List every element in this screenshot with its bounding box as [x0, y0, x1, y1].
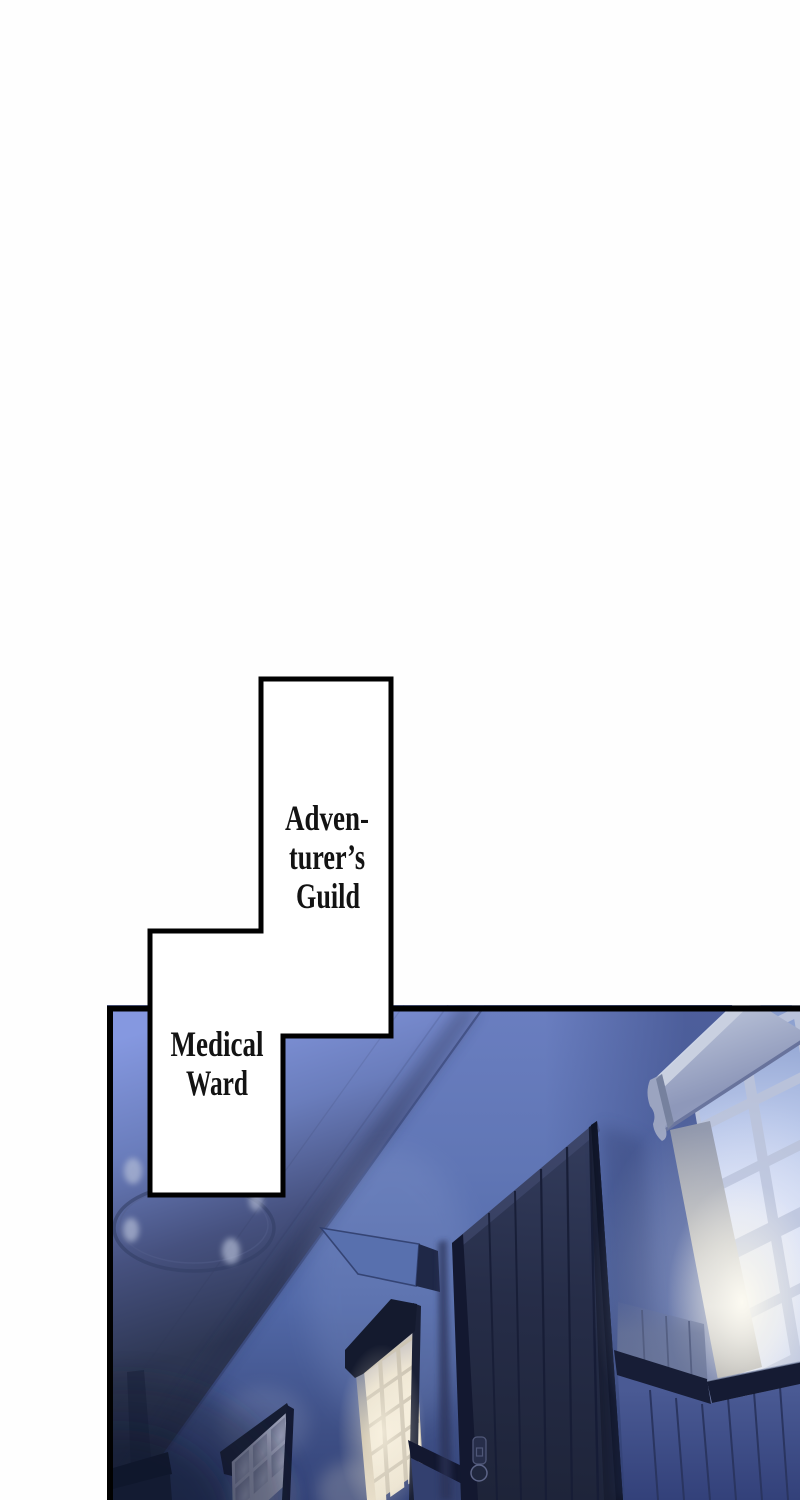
svg-text:Ward: Ward: [186, 1063, 248, 1103]
svg-text:Guild: Guild: [296, 876, 360, 916]
svg-text:turer’s: turer’s: [289, 837, 365, 877]
svg-text:Medical: Medical: [171, 1024, 264, 1064]
svg-text:Adven-: Adven-: [285, 798, 369, 838]
